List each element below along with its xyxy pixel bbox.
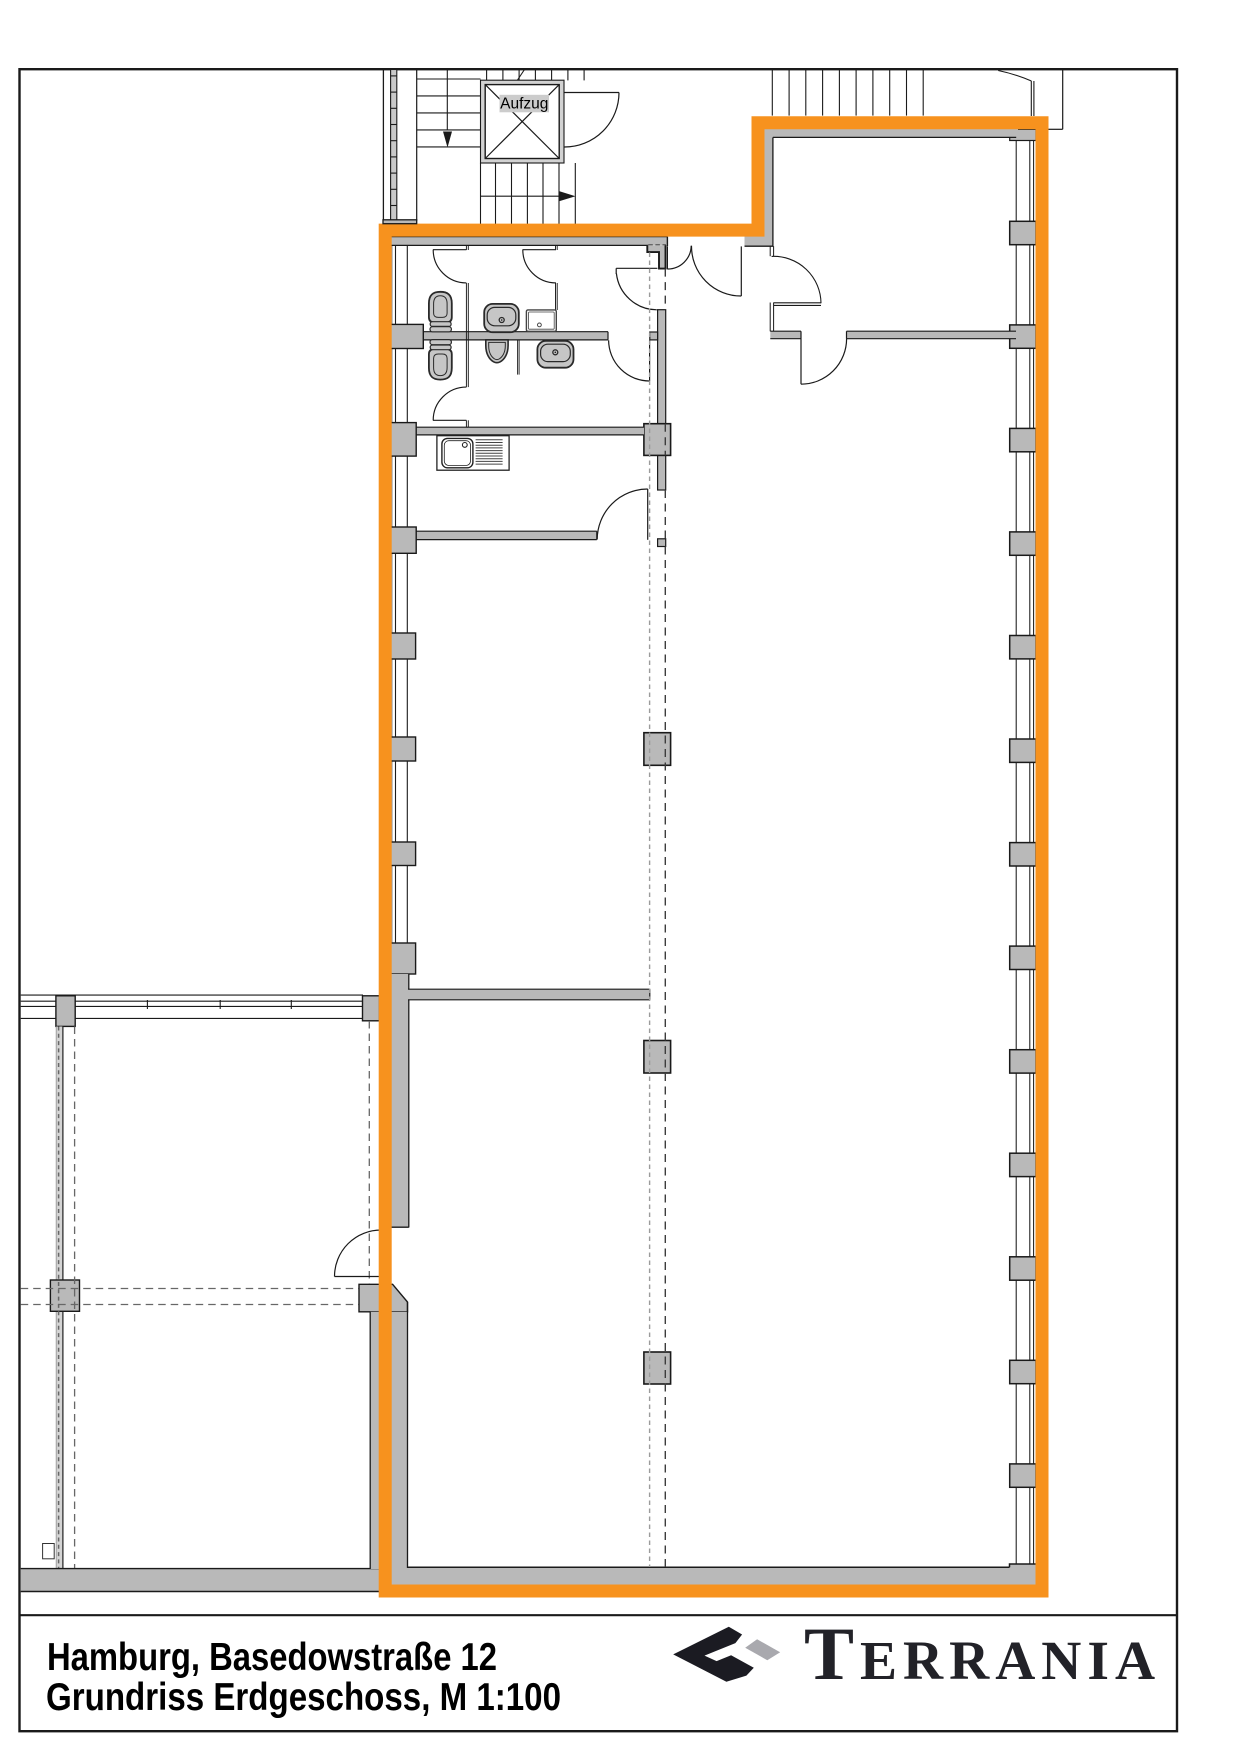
svg-text:Aufzug: Aufzug: [500, 96, 548, 113]
svg-text:Grundriss Erdgeschoss, M 1:100: Grundriss Erdgeschoss, M 1:100: [46, 1676, 561, 1719]
svg-text:Hamburg, Basedowstraße 12: Hamburg, Basedowstraße 12: [47, 1636, 497, 1679]
